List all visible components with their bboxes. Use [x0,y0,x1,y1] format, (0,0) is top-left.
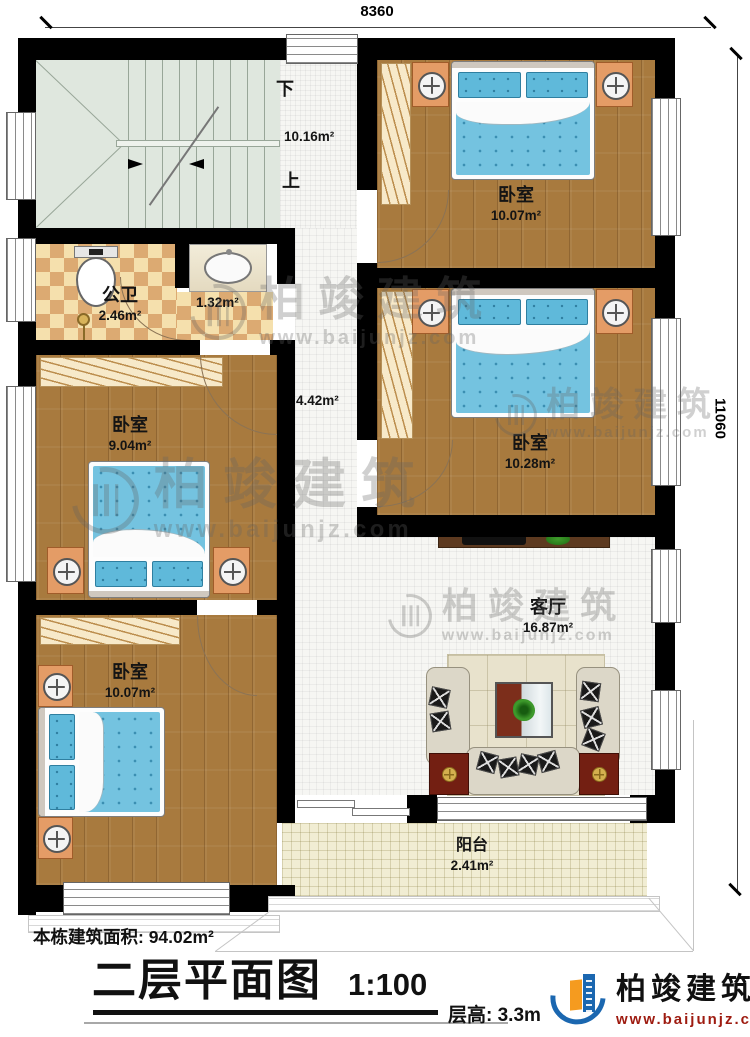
title-rule-thin [84,1022,508,1024]
wall-corridor-left [277,228,295,284]
nightstand [412,62,449,107]
pillow [458,72,521,98]
nightstand [38,817,73,859]
window [6,238,36,322]
pillow [152,561,204,587]
faucet-icon [226,249,232,255]
bed-double [38,707,165,817]
room-label-corridor: 4.42m² [296,392,339,410]
corridor-floor [295,228,357,537]
lamp-icon [418,72,446,100]
company-name: 柏竣建筑 [616,964,750,1008]
company-logo-icon [550,966,608,1026]
stair-arrow [189,159,204,169]
bed-double [88,461,210,598]
company-logo: 柏竣建筑 www.baijunjz.com [550,964,750,1028]
lamp-icon [43,673,71,701]
room-label-stair-hall: 10.16m² [284,128,334,146]
window [63,882,230,915]
logo-building-bar [570,979,582,1010]
lamp-icon [602,72,630,100]
wall-bath-divider [175,244,189,288]
plan-scale: 1:100 [348,967,427,1003]
pillow [49,765,75,811]
window [651,98,681,236]
sofa-cushion [580,681,601,702]
nightstand [596,289,633,334]
room-label-living-room: 客厅16.87m² [488,596,608,637]
dimension-line-right [737,55,738,891]
coffee-table [495,682,553,738]
nightstand [47,547,84,594]
pillow [49,714,75,760]
room-label-balcony: 阳台2.41m² [412,836,532,874]
bed-headboard [89,591,209,597]
window [6,112,36,200]
lamp-icon [43,825,71,853]
title-rule-thick [93,1010,438,1015]
lamp-icon [418,299,446,327]
lamp-icon [602,299,630,327]
nightstand [38,665,73,707]
sofa-cushion [428,686,451,709]
dimension-top-width: 8360 [332,3,422,20]
wall-bedroom-divider-right [377,268,675,288]
eaves-line [693,720,694,951]
lamp-icon [219,558,247,586]
lamp-icon [53,558,81,586]
nightstand [213,547,250,594]
washbasin-counter [189,244,267,292]
wall-pier [407,795,437,823]
dimension-tick [728,883,741,896]
window [651,549,681,623]
room-label-bedroom-middle-right: 卧室10.28m² [470,432,590,473]
nightstand [596,62,633,107]
bed-double [451,288,595,418]
stairs-up-label: 上 [282,170,300,193]
bed-blanket [456,102,590,175]
stair-center-rail [116,140,280,147]
wall-stair-bath-divider [18,228,295,244]
nightstand [412,289,449,334]
wardrobe [40,617,180,645]
room-label-bedroom-top-right: 卧室10.07m² [456,184,576,225]
wall-corridor-left [277,615,295,823]
wardrobe [381,63,411,205]
sliding-door-panel [352,808,410,816]
balcony-railing [268,896,660,912]
wall-corridor-left [277,340,295,615]
stairwell [36,60,280,228]
sliding-door-panel [297,800,355,808]
eaves-line [648,898,693,951]
wall-bedroom-divider [18,600,197,615]
bed-blanket [93,466,205,557]
dimension-tick [729,47,742,60]
pillow [95,561,147,587]
window [651,318,681,486]
floor-plan-page: 8360 11060 [0,0,750,1037]
wall-living-top [357,515,675,537]
dimension-line-top [45,27,711,28]
dimension-right-height: 11060 [712,384,729,454]
sofa-cushion [430,711,452,733]
pillow [526,299,589,325]
bed-blanket [456,329,590,413]
room-label-bedroom-bottom-left: 卧室10.07m² [70,661,190,702]
room-label-bathroom: 公卫2.46m² [60,284,180,325]
toilet-button [89,249,103,255]
side-table [429,753,469,795]
pillow [526,72,589,98]
bed-double [451,61,595,180]
window [286,34,358,64]
stairs-down-label: 下 [276,78,294,101]
plant-icon [513,699,535,721]
stair-landing-line [35,60,125,146]
room-label-bedroom-left: 卧室9.04m² [70,414,190,455]
stair-landing-line [36,142,126,228]
window [651,690,681,770]
pillow [458,299,521,325]
bed-blanket [79,712,160,812]
stair-arrow [128,159,143,169]
window [6,386,36,582]
wardrobe [381,291,413,439]
side-table [579,753,619,795]
wall-bath-bedroom-divider [18,340,200,355]
company-website: www.baijunjz.com [616,1011,750,1028]
balcony-window [437,797,647,821]
sofa-cushion [497,756,519,778]
plan-title: 二层平面图 [92,944,322,1008]
logo-building-bar [583,974,595,1012]
washbasin-sink [204,252,252,284]
wall-corridor-right [357,60,377,190]
floor-height-text: 层高: 3.3m [448,1000,541,1027]
plan-title-row: 二层平面图 1:100 [92,944,427,1008]
wall-corridor-right [357,263,377,440]
room-label-washbasin: 1.32m² [196,294,239,312]
wardrobe [40,357,223,387]
